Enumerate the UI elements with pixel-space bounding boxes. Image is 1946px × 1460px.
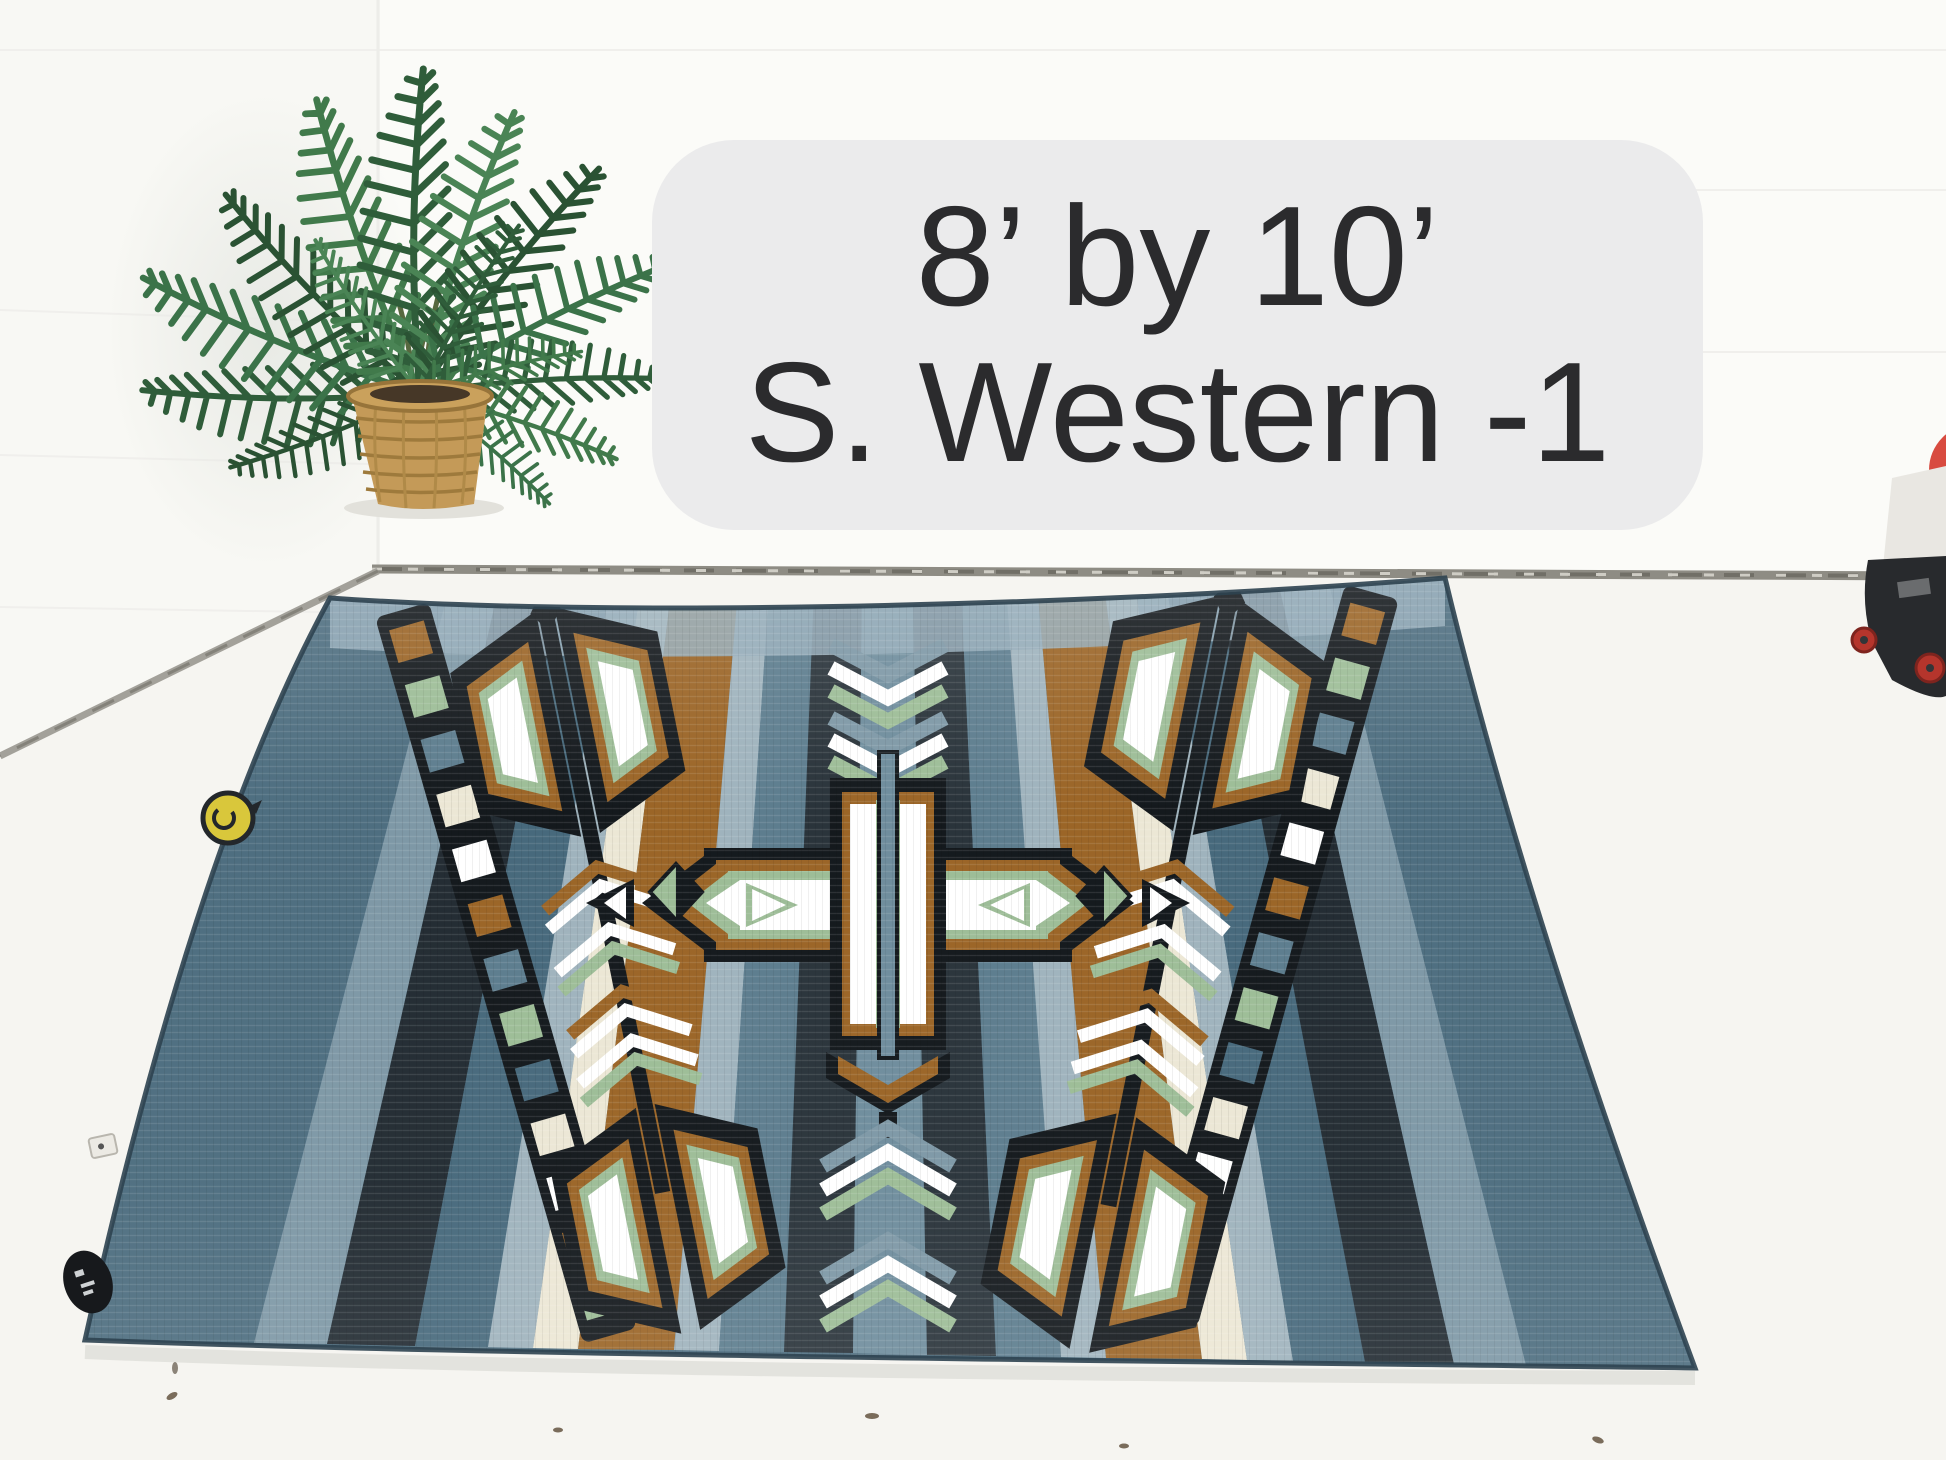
white-square-tag [88,1134,118,1159]
pot-soil [370,385,470,403]
size-label-overlay: 8’ by 10’ S. Western -1 [652,140,1703,530]
label-line-style: S. Western -1 [745,335,1610,491]
wicker-pot [348,381,492,509]
label-line-size: 8’ by 10’ [916,179,1440,335]
photo-scene: 8’ by 10’ S. Western -1 [0,0,1946,1460]
area-rug [55,557,1720,1390]
